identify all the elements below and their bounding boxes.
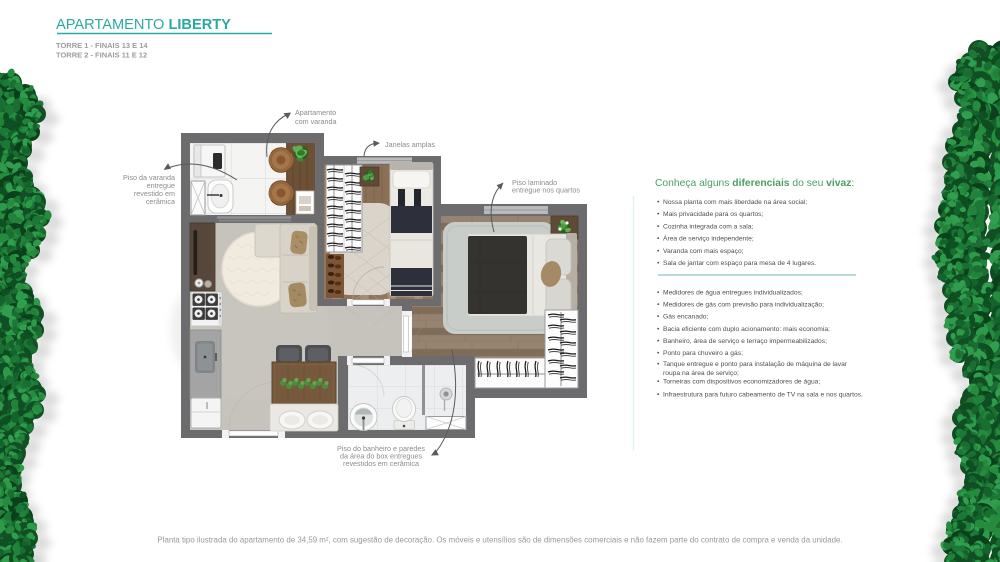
svg-text:Tanque entregue e ponto para i: Tanque entregue e ponto para instalação … xyxy=(663,361,848,368)
svg-text:TORRE 1 - FINAIS 13 E 14: TORRE 1 - FINAIS 13 E 14 xyxy=(56,41,148,50)
svg-text:Apartamento: Apartamento xyxy=(295,108,336,117)
svg-text:Janelas amplas: Janelas amplas xyxy=(385,140,435,149)
svg-text:cerâmica: cerâmica xyxy=(146,197,175,206)
svg-text:Conheça alguns diferenciais do: Conheça alguns diferenciais do seu vivaz… xyxy=(655,178,854,189)
svg-text:Área de serviço independente;: Área de serviço independente; xyxy=(663,234,754,243)
svg-text:Medidores de gás com previsão: Medidores de gás com previsão para indiv… xyxy=(663,302,824,309)
svg-text:com varanda: com varanda xyxy=(295,117,337,126)
svg-text:Mais privacidade para os quart: Mais privacidade para os quartos; xyxy=(663,211,764,218)
svg-text:Ponto para chuveiro a gás;: Ponto para chuveiro a gás; xyxy=(663,350,743,357)
svg-text:Nossa planta com mais liberdad: Nossa planta com mais liberdade na área … xyxy=(663,199,807,206)
svg-text:Cozinha integrada com a sala;: Cozinha integrada com a sala; xyxy=(663,223,753,230)
svg-text:Varanda com mais espaço;: Varanda com mais espaço; xyxy=(663,248,744,255)
svg-text:Planta tipo ilustrada do apart: Planta tipo ilustrada do apartamento de … xyxy=(157,536,842,545)
svg-text:Banheiro, área de serviço e te: Banheiro, área de serviço e terraço impe… xyxy=(663,338,827,345)
svg-text:revestidos em cerâmica: revestidos em cerâmica xyxy=(343,459,419,468)
svg-text:Gás encanado;: Gás encanado; xyxy=(663,314,709,321)
svg-text:Sala de jantar com espaço para: Sala de jantar com espaço para mesa de 4… xyxy=(663,260,816,267)
svg-text:roupa na área de serviço;: roupa na área de serviço; xyxy=(663,370,739,377)
svg-text:TORRE 2 - FINAIS 11 E 12: TORRE 2 - FINAIS 11 E 12 xyxy=(56,51,147,60)
svg-text:APARTAMENTO LIBERTY: APARTAMENTO LIBERTY xyxy=(56,17,231,33)
svg-text:entregue nos quartos: entregue nos quartos xyxy=(512,186,580,195)
svg-text:Bacia eficiente com duplo acio: Bacia eficiente com duplo acionamento: m… xyxy=(663,326,830,333)
svg-text:Medidores de água entregues in: Medidores de água entregues individualiz… xyxy=(663,289,803,296)
svg-text:Torneiras com dispositivos eco: Torneiras com dispositivos economizadore… xyxy=(663,379,820,386)
svg-text:Infraestrutura para futuro cab: Infraestrutura para futuro cabeamento de… xyxy=(663,392,863,399)
